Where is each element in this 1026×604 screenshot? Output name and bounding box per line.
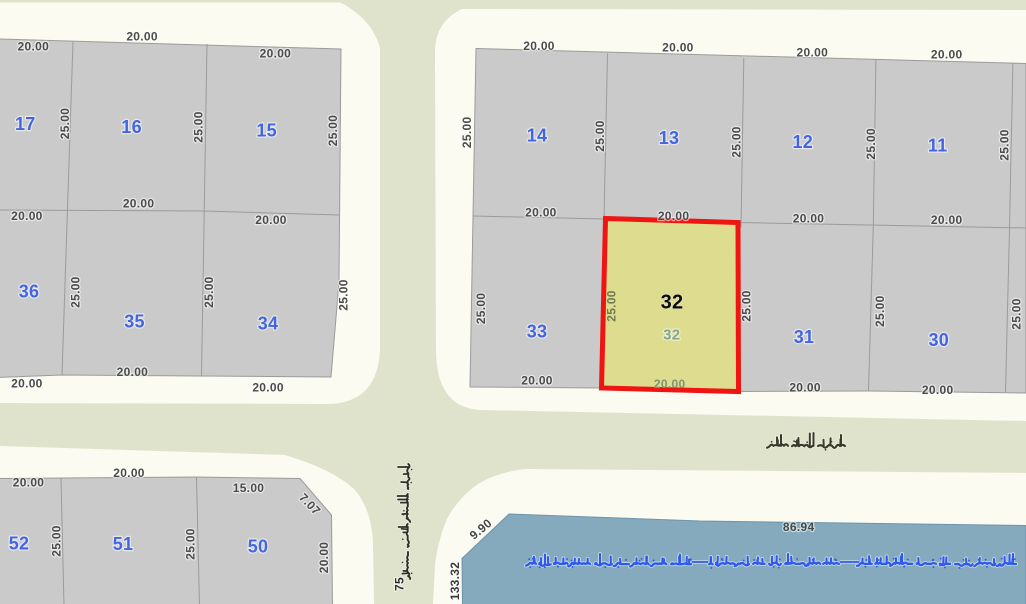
svg-text:25.00: 25.00	[183, 528, 197, 560]
svg-text:133.32: 133.32	[448, 562, 462, 601]
svg-text:16: 16	[121, 117, 142, 137]
svg-text:32: 32	[661, 292, 684, 314]
svg-text:25.00: 25.00	[739, 290, 753, 322]
svg-text:20.00: 20.00	[525, 206, 557, 220]
svg-text:25.00: 25.00	[69, 276, 83, 308]
svg-text:25.00: 25.00	[49, 525, 63, 557]
svg-text:20.00: 20.00	[260, 47, 292, 61]
svg-text:25.00: 25.00	[864, 128, 878, 160]
svg-text:25.00: 25.00	[873, 295, 887, 327]
svg-text:20.00: 20.00	[113, 466, 145, 480]
svg-text:86.94: 86.94	[783, 520, 815, 534]
svg-text:20.00: 20.00	[117, 365, 149, 379]
svg-text:20.00: 20.00	[789, 380, 821, 394]
svg-text:20.00: 20.00	[931, 48, 963, 62]
svg-text:30: 30	[928, 330, 949, 350]
svg-text:20.00: 20.00	[654, 377, 686, 391]
svg-text:25.00: 25.00	[593, 120, 607, 152]
svg-text:25.00: 25.00	[1010, 298, 1024, 330]
svg-text:20.00: 20.00	[317, 542, 331, 574]
svg-text:20.00: 20.00	[523, 39, 555, 53]
svg-text:25.00: 25.00	[337, 279, 351, 311]
svg-text:20.00: 20.00	[252, 381, 284, 395]
svg-text:20.00: 20.00	[126, 29, 158, 43]
svg-text:33: 33	[527, 321, 548, 341]
svg-text:20.00: 20.00	[658, 209, 690, 223]
svg-text:36: 36	[19, 282, 40, 302]
svg-text:20.00: 20.00	[662, 41, 694, 55]
svg-text:20.00: 20.00	[797, 46, 829, 60]
svg-text:20.00: 20.00	[13, 475, 45, 489]
svg-text:31: 31	[794, 327, 815, 347]
svg-text:25.00: 25.00	[58, 108, 72, 140]
svg-text:50: 50	[248, 537, 269, 557]
svg-text:25.00: 25.00	[192, 111, 206, 143]
svg-text:32: 32	[663, 326, 680, 343]
svg-text:51: 51	[113, 534, 134, 554]
svg-text:25.00: 25.00	[997, 129, 1011, 161]
svg-text:20.00: 20.00	[18, 40, 50, 54]
svg-text:15.00: 15.00	[233, 481, 265, 495]
svg-text:25.00: 25.00	[604, 290, 618, 322]
svg-text:20.00: 20.00	[931, 213, 963, 227]
svg-text:52: 52	[9, 534, 30, 554]
svg-text:20.00: 20.00	[521, 373, 553, 387]
svg-text:17: 17	[15, 114, 36, 134]
svg-text:20.00: 20.00	[11, 376, 43, 390]
svg-text:20.00: 20.00	[793, 211, 825, 225]
svg-text:75: 75	[392, 577, 406, 591]
svg-text:25.00: 25.00	[460, 117, 474, 149]
svg-text:25.00: 25.00	[729, 126, 743, 158]
svg-text:13: 13	[659, 128, 680, 148]
svg-text:12: 12	[792, 132, 813, 152]
svg-text:25.00: 25.00	[202, 276, 216, 308]
svg-text:20.00: 20.00	[922, 383, 954, 397]
svg-text:11: 11	[928, 135, 948, 155]
svg-text:20.00: 20.00	[11, 209, 43, 223]
svg-text:20.00: 20.00	[255, 213, 287, 227]
svg-text:35: 35	[124, 312, 145, 332]
svg-text:20.00: 20.00	[123, 196, 155, 210]
svg-text:14: 14	[527, 125, 548, 145]
svg-text:15: 15	[256, 120, 277, 140]
svg-text:34: 34	[258, 314, 279, 334]
svg-text:25.00: 25.00	[474, 293, 488, 325]
svg-text:25.00: 25.00	[326, 115, 340, 147]
